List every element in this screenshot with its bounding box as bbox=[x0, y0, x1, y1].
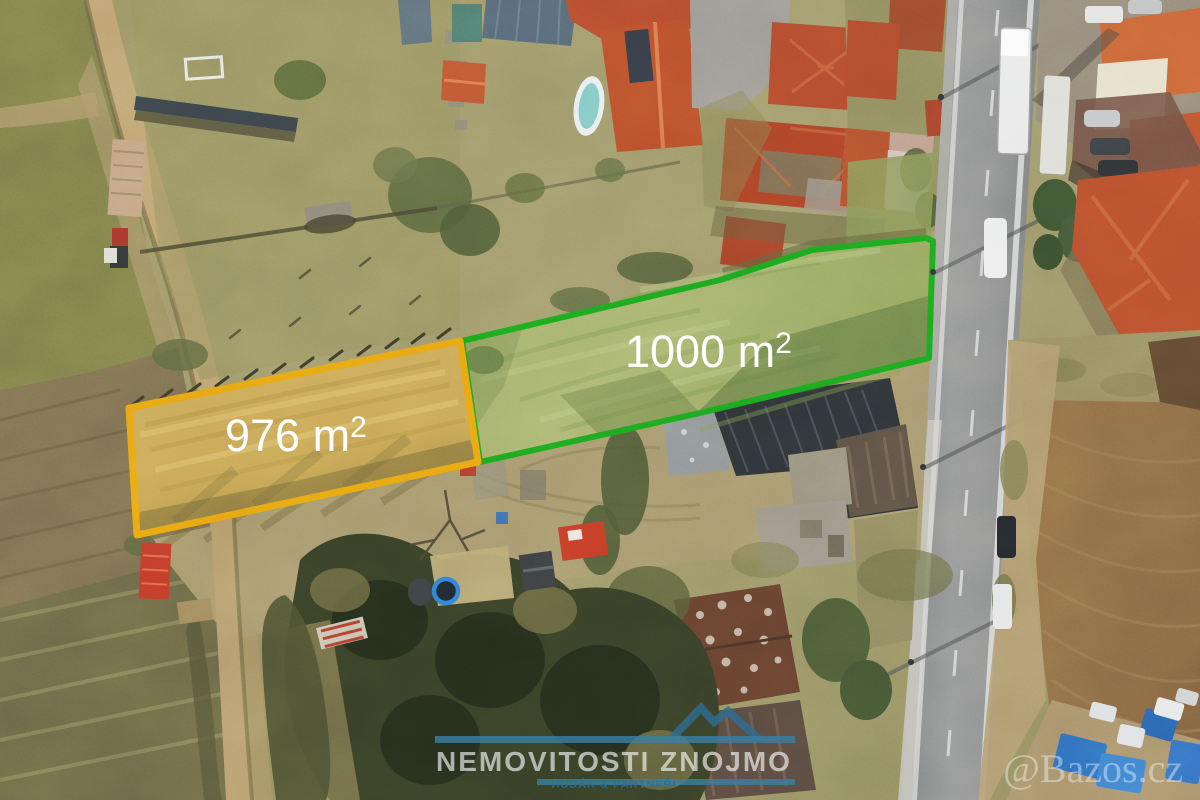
svg-text:NEMOVITOSTI ZNOJMO: NEMOVITOSTI ZNOJMO bbox=[436, 746, 792, 777]
svg-text:@Bazos.cz: @Bazos.cz bbox=[1003, 746, 1183, 791]
svg-text:HUDÁK & PARTNEŘI: HUDÁK & PARTNEŘI bbox=[551, 778, 676, 791]
